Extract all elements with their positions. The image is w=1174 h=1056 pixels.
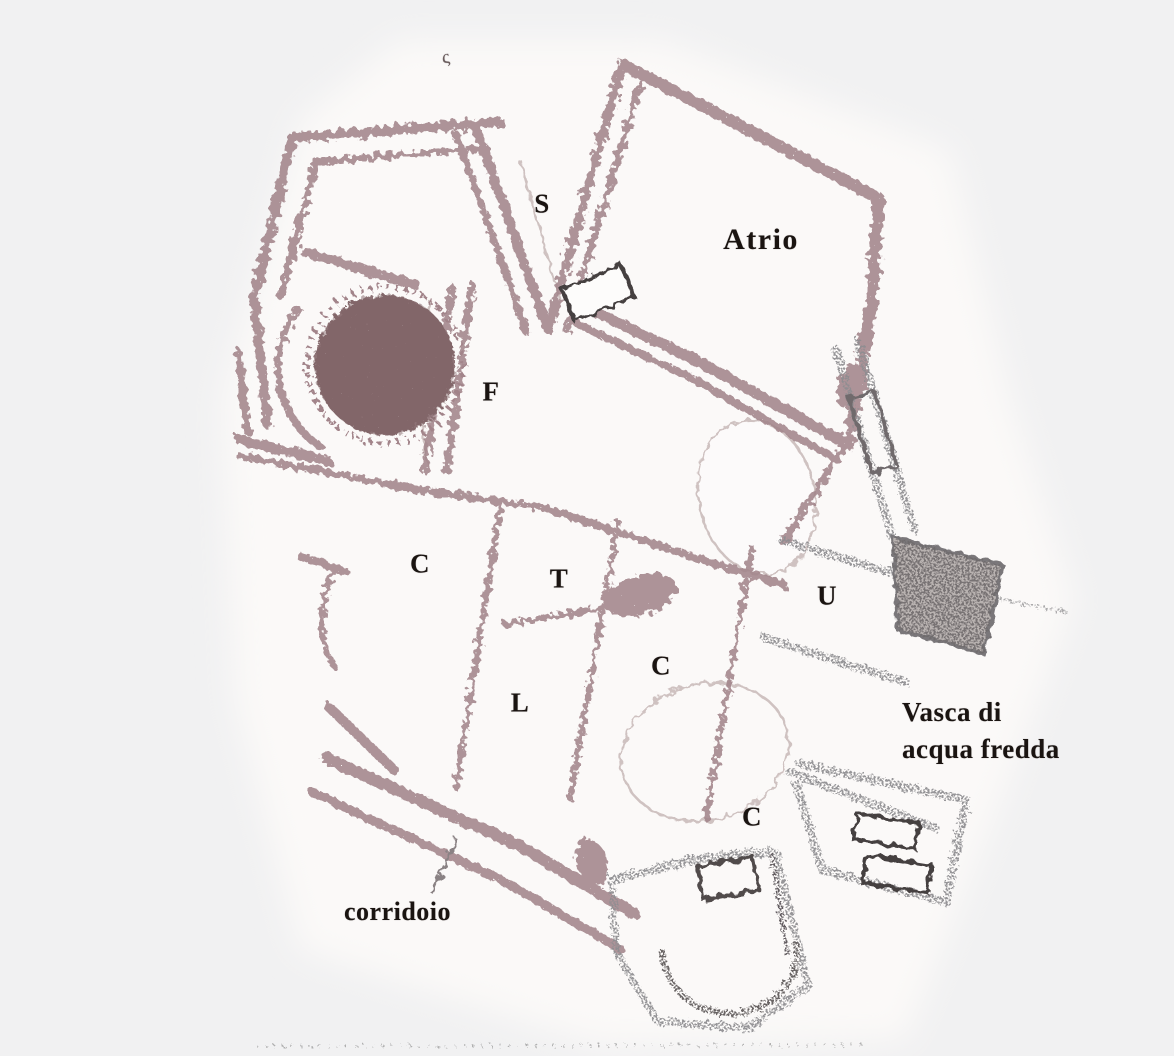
- room-label-c-middle: C: [651, 651, 671, 682]
- scanned-bath-plan: ς S Atrio F C T U C L C corridoio Vasca …: [0, 0, 1174, 1056]
- cold-pool-label-line2: acqua fredda: [902, 731, 1060, 768]
- plan-drawing: [0, 0, 1174, 1056]
- room-label-f: F: [483, 377, 500, 408]
- room-label-s: S: [534, 189, 550, 220]
- room-label-atrio: Atrio: [723, 223, 799, 257]
- bottom-noise-strip: [256, 1044, 866, 1047]
- cold-pool-label: Vasca di acqua fredda: [902, 694, 1060, 768]
- corridor-label: corridoio: [344, 897, 451, 927]
- room-label-t: T: [550, 564, 569, 595]
- cold-pool-label-line1: Vasca di: [902, 694, 1060, 731]
- room-label-l: L: [511, 688, 530, 719]
- room-label-u: U: [817, 581, 837, 612]
- room-label-c-lower: C: [742, 802, 762, 833]
- room-label-c-upper: C: [410, 549, 430, 580]
